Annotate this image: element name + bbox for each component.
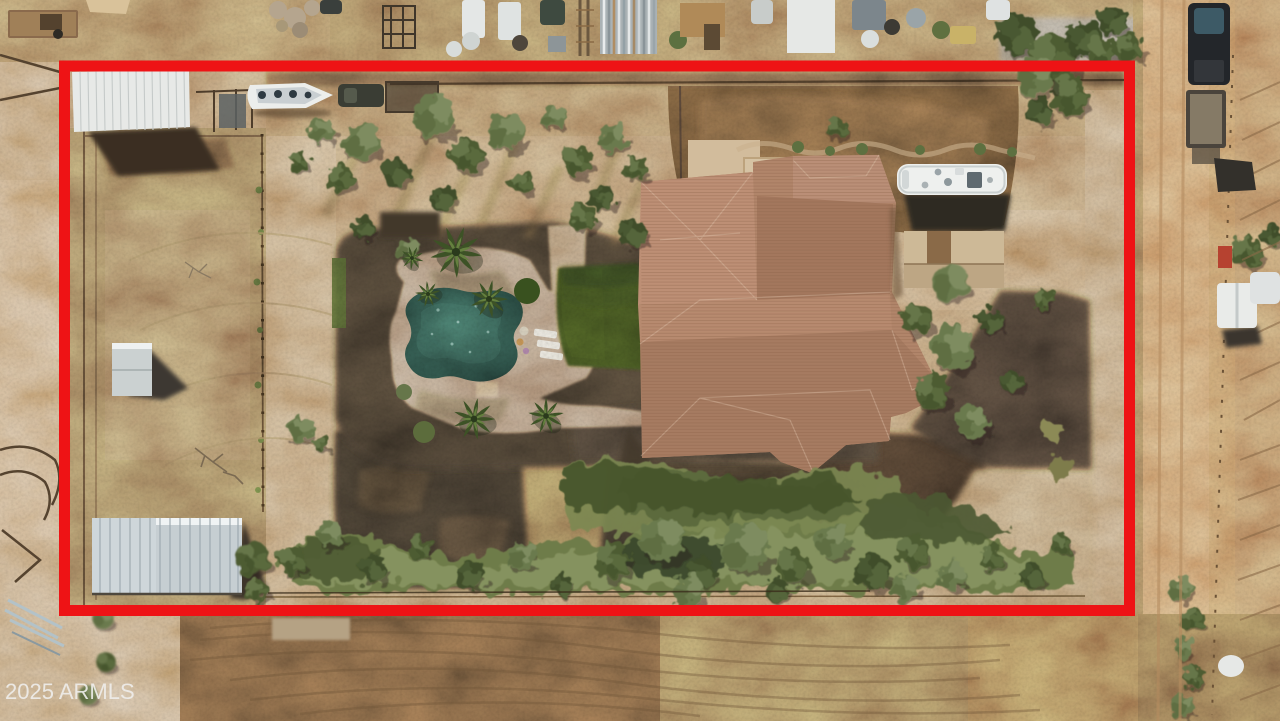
svg-text:2025 ARMLS: 2025 ARMLS	[5, 679, 135, 704]
